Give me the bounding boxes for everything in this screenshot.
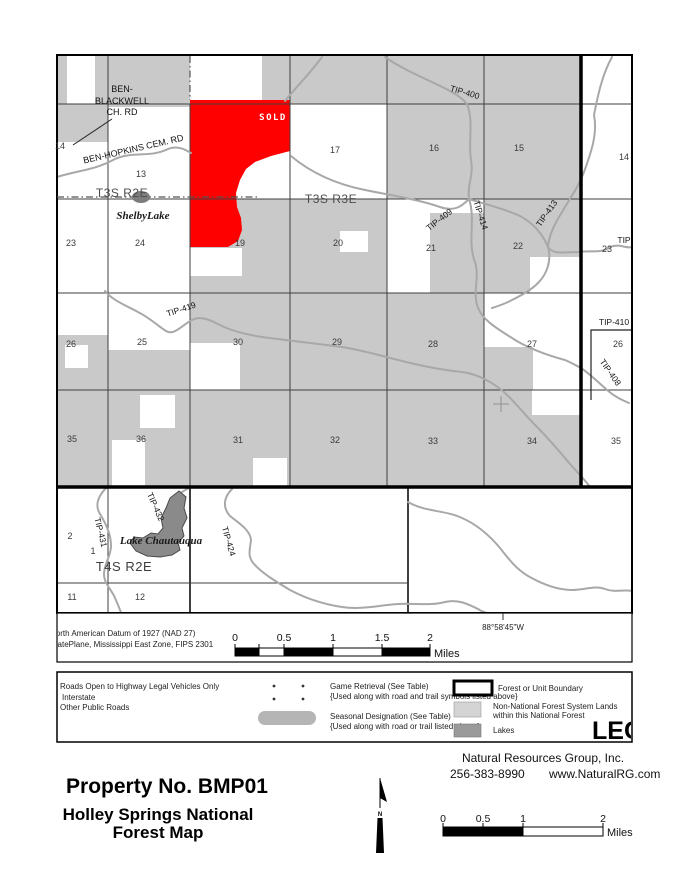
lake-chautauqua-label: Lake Chautauqua [119, 535, 203, 547]
svg-text:2: 2 [67, 531, 72, 541]
property-title: Property No. BMP01 [66, 775, 268, 798]
north-arrow-icon: N [376, 778, 387, 853]
legend-game-retrieval-1: Game Retrieval (See Table) [330, 682, 429, 691]
svg-text:21: 21 [426, 243, 436, 253]
svg-text:2: 2 [427, 632, 433, 644]
svg-text:1.5: 1.5 [375, 632, 390, 644]
map-title-line-2: Forest Map [113, 823, 204, 842]
ben-blackwell-label-1: BEN- [111, 84, 133, 94]
legend-title: LEGEND [592, 717, 680, 745]
north-arrow-label: N [378, 812, 382, 818]
svg-text:35: 35 [67, 434, 77, 444]
svg-text:15: 15 [514, 143, 524, 153]
legend-lakes-label: Lakes [493, 726, 514, 735]
map-title-line-1: Holley Springs National [63, 805, 254, 824]
township-t3s-r2e: T3S R2E [96, 186, 148, 200]
company-phone: 256-383-8990 [450, 767, 525, 781]
legend-nonforest-label-1: Non-National Forest System Lands [493, 702, 618, 711]
township-t3s-r3e: T3S R3E [305, 192, 357, 206]
legend-interstate: Interstate [62, 693, 96, 702]
nonforest-swatch [454, 702, 481, 717]
shelby-lake-label: ShelbyLake [116, 210, 169, 222]
legend-roads-open: Roads Open to Highway Legal Vehicles Onl… [60, 682, 219, 691]
svg-text:23: 23 [66, 238, 76, 248]
footer-scale-bar: 0 0.5 1 2 Miles [440, 813, 633, 839]
svg-text:12: 12 [135, 592, 145, 602]
lakes-swatch [454, 724, 481, 737]
svg-text:14: 14 [55, 141, 65, 151]
svg-text:1: 1 [90, 546, 95, 556]
datum-line-1: North American Datum of 1927 (NAD 27) [50, 629, 196, 638]
svg-text:26: 26 [613, 339, 623, 349]
ben-blackwell-label-2: BLACKWELL [95, 96, 149, 106]
svg-text:23: 23 [602, 244, 612, 254]
svg-text:29: 29 [332, 337, 342, 347]
svg-text:30: 30 [233, 337, 243, 347]
svg-text:0: 0 [232, 632, 238, 644]
map-sheet: SOLD BEN- BLACKWELL CH. RD BEN-HOPKINS C… [0, 0, 680, 880]
road-label-tip-clipped: TIP [617, 235, 631, 245]
svg-text:16: 16 [429, 143, 439, 153]
svg-text:17: 17 [330, 145, 340, 155]
svg-text:32: 32 [330, 435, 340, 445]
svg-text:31: 31 [233, 435, 243, 445]
svg-text:27: 27 [527, 339, 537, 349]
collar-miles-label: Miles [434, 648, 460, 660]
svg-text:1: 1 [330, 632, 336, 644]
legend-other-roads: Other Public Roads [60, 703, 129, 712]
company-name: Natural Resources Group, Inc. [462, 751, 624, 765]
legend-seasonal-1: Seasonal Designation (See Table) [330, 712, 451, 721]
svg-text:34: 34 [527, 436, 537, 446]
svg-text:25: 25 [137, 337, 147, 347]
svg-text:14: 14 [619, 152, 629, 162]
township-t4s-r2e: T4S R2E [96, 559, 152, 574]
ben-blackwell-label-3: CH. RD [107, 107, 138, 117]
svg-text:22: 22 [513, 241, 523, 251]
map-canvas: SOLD BEN- BLACKWELL CH. RD BEN-HOPKINS C… [0, 0, 680, 880]
svg-text:35: 35 [611, 436, 621, 446]
legend-boundary-label: Forest or Unit Boundary [498, 684, 583, 693]
svg-text:26: 26 [66, 339, 76, 349]
company-website: www.NaturalRG.com [548, 767, 660, 781]
sold-label: SOLD [259, 113, 287, 123]
legend-nonforest-label-2: within this National Forest [492, 711, 585, 720]
seasonal-designation-icon [258, 711, 316, 725]
svg-text:19: 19 [235, 238, 245, 248]
boundary-swatch [454, 681, 492, 695]
svg-text:11: 11 [67, 592, 76, 602]
svg-text:28: 28 [428, 339, 438, 349]
svg-text:13: 13 [136, 169, 146, 179]
svg-text:36: 36 [136, 434, 146, 444]
datum-line-2: StatePlane, Mississippi East Zone, FIPS … [50, 640, 214, 649]
road-label-tip-410: TIP-410 [599, 317, 630, 327]
svg-text:0.5: 0.5 [277, 632, 292, 644]
coordinate-label: 88°58'45"W [482, 623, 524, 632]
svg-text:33: 33 [428, 436, 438, 446]
svg-text:24: 24 [135, 238, 145, 248]
svg-text:20: 20 [333, 238, 343, 248]
footer-miles-label: Miles [607, 827, 633, 839]
